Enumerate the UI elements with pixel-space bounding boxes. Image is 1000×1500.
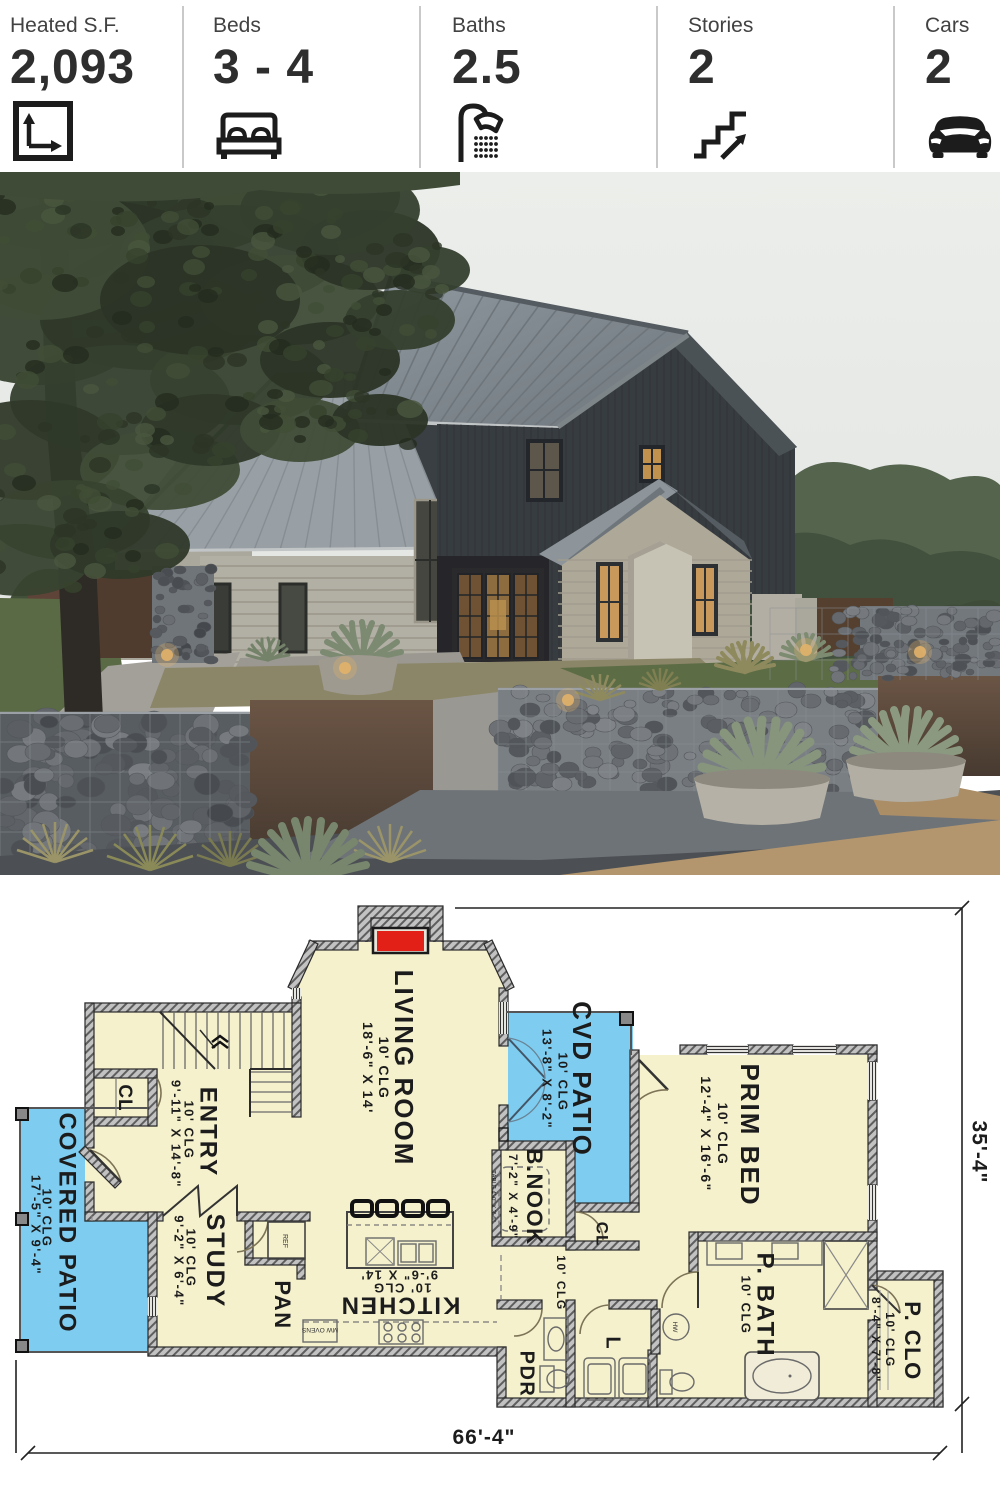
svg-text:18'-6" X 14': 18'-6" X 14' — [360, 1022, 376, 1114]
svg-text:10' CLG: 10' CLG — [376, 1037, 392, 1100]
svg-text:CVD PATIO: CVD PATIO — [567, 1001, 597, 1157]
svg-text:TABLE 4'-0" X 3'-6": TABLE 4'-0" X 3'-6" — [489, 1170, 495, 1221]
svg-text:66'-4": 66'-4" — [453, 1426, 516, 1449]
svg-text:B.NOOK: B.NOOK — [522, 1149, 547, 1246]
svg-text:8'-4" X 7'-8": 8'-4" X 7'-8" — [869, 1297, 883, 1383]
svg-text:MW OVENS: MW OVENS — [301, 1326, 338, 1333]
svg-text:COVERED PATIO: COVERED PATIO — [54, 1112, 81, 1333]
svg-text:CL: CL — [592, 1222, 611, 1247]
svg-text:35'-4": 35'-4" — [967, 1121, 990, 1184]
svg-text:9'-2" X 6'-4": 9'-2" X 6'-4" — [172, 1215, 187, 1306]
svg-text:HW: HW — [671, 1322, 678, 1334]
svg-text:P. CLO: P. CLO — [900, 1301, 925, 1381]
svg-text:7'-2" X 4'-9": 7'-2" X 4'-9" — [506, 1154, 520, 1240]
svg-text:PRIM BED: PRIM BED — [735, 1063, 765, 1206]
svg-text:PDR: PDR — [516, 1351, 538, 1398]
svg-text:13'-8" X 8'-2": 13'-8" X 8'-2" — [540, 1029, 555, 1129]
svg-text:12'-4" X 16'-6": 12'-4" X 16'-6" — [698, 1076, 714, 1192]
svg-text:P. BATH: P. BATH — [752, 1252, 779, 1357]
svg-text:17'-5" X 9'-4": 17'-5" X 9'-4" — [29, 1175, 44, 1275]
svg-text:STUDY: STUDY — [201, 1214, 229, 1309]
svg-text:PAN: PAN — [270, 1280, 295, 1329]
svg-text:LIVING ROOM: LIVING ROOM — [389, 970, 419, 1167]
svg-text:10' CLG: 10' CLG — [554, 1255, 568, 1310]
svg-text:L: L — [602, 1336, 624, 1349]
svg-text:10' CLG: 10' CLG — [739, 1275, 754, 1334]
svg-text:10' CLG: 10' CLG — [715, 1103, 731, 1166]
svg-text:9'-11" X 14'-8": 9'-11" X 14'-8" — [169, 1080, 184, 1188]
svg-text:CL: CL — [114, 1084, 135, 1111]
svg-text:9'-6" X 14': 9'-6" X 14' — [360, 1268, 438, 1283]
svg-text:ENTRY: ENTRY — [195, 1087, 222, 1177]
svg-text:10' CLG: 10' CLG — [556, 1052, 571, 1111]
svg-text:REF: REF — [281, 1234, 288, 1248]
svg-text:10' CLG: 10' CLG — [883, 1312, 897, 1367]
